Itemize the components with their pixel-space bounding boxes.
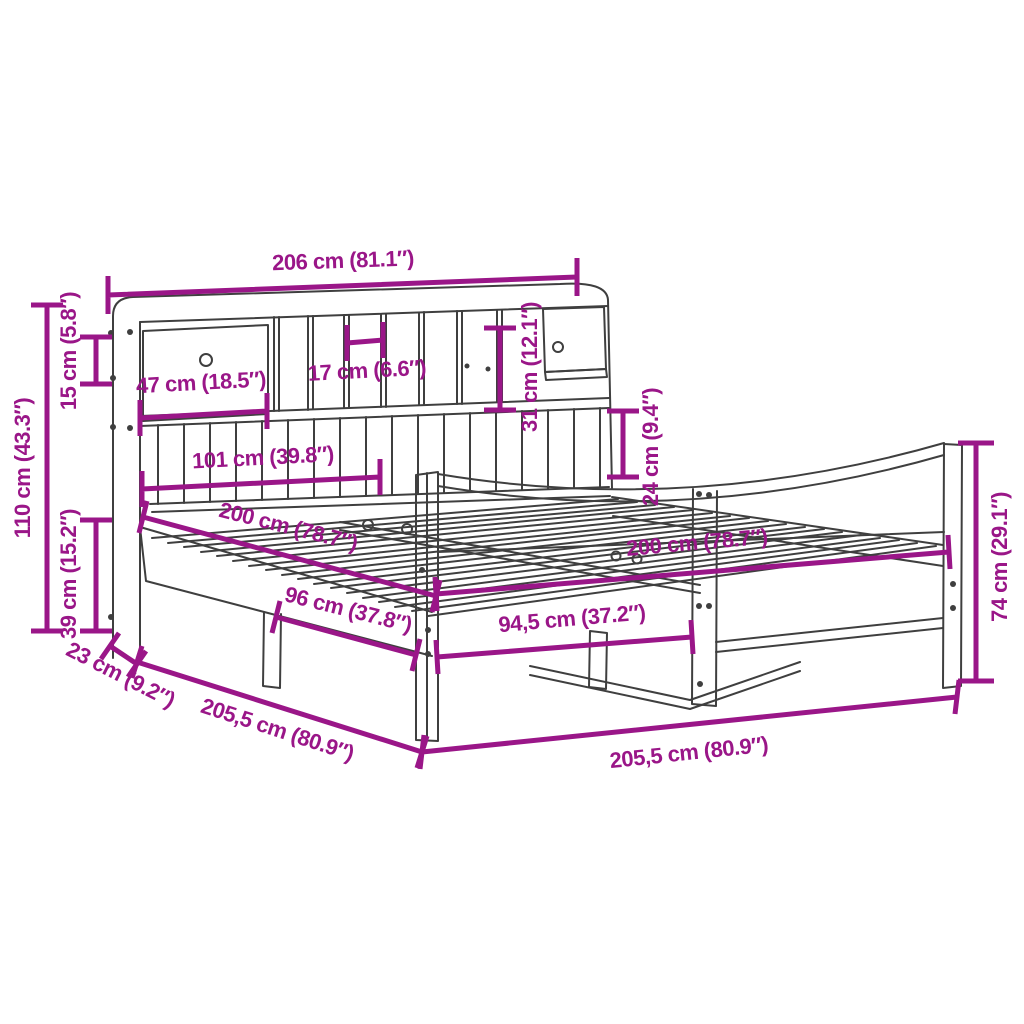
dimension-diagram: 206 cm (81.1″) 110 cm (43.3″) 15 cm (5.8… [0,0,1024,1024]
dimension-headboard-depth: 23 cm (9.2″) [62,633,179,713]
footboard-lower-rail [716,618,943,652]
dimension-label: 17 cm (6.6″) [307,355,427,386]
dimension-line [80,520,112,631]
dimension-line [80,337,112,384]
dimension-top-shelf-height: 15 cm (5.8″) [56,292,112,410]
dimension-label: 47 cm (18.5″) [135,366,266,398]
dimension-footboard-height: 74 cm (29.1″) [958,443,1012,681]
dimension-label: 96 cm (37.8″) [282,582,414,638]
diagram-canvas: 206 cm (81.1″) 110 cm (43.3″) 15 cm (5.8… [0,0,1024,1024]
dimension-label: 206 cm (81.1″) [272,245,415,275]
footboard-far-post [943,444,962,688]
drawer-knob [553,342,563,352]
support-braces [530,662,800,709]
dimension-cubby-width: 17 cm (6.6″) [307,322,427,386]
dimension-label: 74 cm (29.1″) [987,492,1012,622]
dimension-label: 110 cm (43.3″) [10,398,35,539]
dimension-label: 31 cm (12.1″) [517,302,542,432]
dimension-overall-width-top: 206 cm (81.1″) [108,245,577,314]
drawer-knob [200,354,212,366]
dimension-inner-width-headboard: 96 cm (37.8″) [272,582,420,671]
dimension-label: 94,5 cm (37.2″) [497,599,646,637]
dimension-under-bed-height: 39 cm (15.2″) [56,509,112,639]
dimension-label: 15 cm (5.8″) [56,292,81,410]
right-compartment-shelf [545,369,607,380]
dimension-inner-width-footboard: 94,5 cm (37.2″) [436,599,693,674]
dimension-label: 39 cm (15.2″) [56,509,81,639]
dimension-line [347,322,383,361]
dimension-side-compartment-height: 31 cm (12.1″) [484,302,542,432]
dimension-label: 23 cm (9.2″) [62,637,179,713]
dimension-overall-length-right: 205,5 cm (80.9″) [420,680,959,773]
dimension-label: 205,5 cm (80.9″) [608,732,769,774]
dimension-label: 24 cm (9.4″) [638,388,663,506]
dimension-line [140,393,267,436]
headboard-right-drawer [543,307,606,372]
